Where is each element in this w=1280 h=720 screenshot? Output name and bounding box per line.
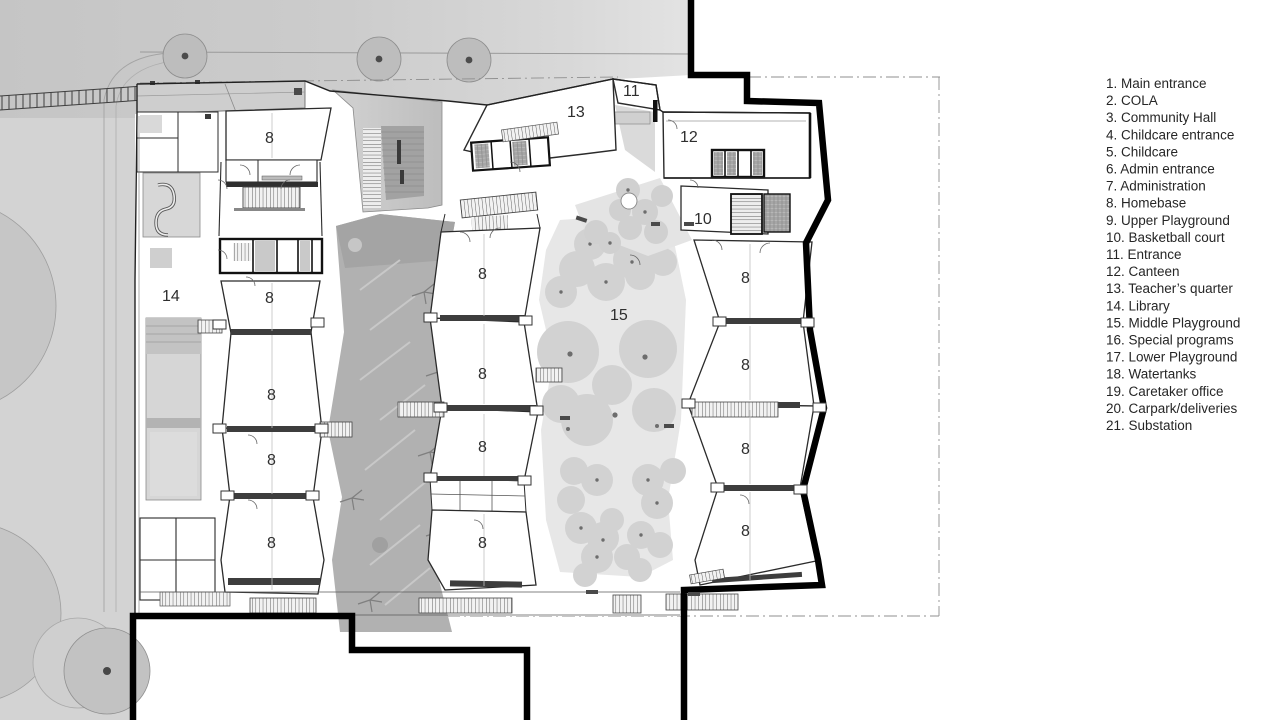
svg-text:17. Lower Playground: 17. Lower Playground (1106, 350, 1237, 365)
svg-text:4. Childcare entrance: 4. Childcare entrance (1106, 127, 1234, 142)
svg-text:16. Special programs: 16. Special programs (1106, 333, 1234, 348)
svg-text:2. COLA: 2. COLA (1106, 93, 1158, 108)
svg-text:6. Admin entrance: 6. Admin entrance (1106, 162, 1215, 177)
svg-text:10: 10 (694, 211, 712, 228)
svg-text:7. Administration: 7. Administration (1106, 179, 1206, 194)
svg-text:8: 8 (741, 270, 750, 287)
svg-text:1. Main entrance: 1. Main entrance (1106, 76, 1207, 91)
svg-text:8: 8 (265, 130, 274, 147)
svg-text:8: 8 (265, 290, 274, 307)
svg-text:9. Upper Playground: 9. Upper Playground (1106, 213, 1230, 228)
svg-text:15. Middle Playground: 15. Middle Playground (1106, 315, 1240, 330)
svg-text:13: 13 (567, 104, 585, 121)
svg-text:8: 8 (741, 441, 750, 458)
svg-text:14. Library: 14. Library (1106, 298, 1170, 313)
svg-text:8: 8 (478, 535, 487, 552)
svg-text:8: 8 (478, 439, 487, 456)
svg-text:18. Watertanks: 18. Watertanks (1106, 367, 1197, 382)
svg-text:10. Basketball court: 10. Basketball court (1106, 230, 1225, 245)
svg-text:8: 8 (741, 357, 750, 374)
svg-text:8: 8 (478, 366, 487, 383)
svg-text:12: 12 (680, 129, 698, 146)
svg-text:11: 11 (623, 83, 640, 100)
svg-text:12. Canteen: 12. Canteen (1106, 264, 1180, 279)
svg-text:5. Childcare: 5. Childcare (1106, 144, 1178, 159)
svg-text:15: 15 (610, 307, 628, 324)
svg-text:20. Carpark/deliveries: 20. Carpark/deliveries (1106, 401, 1238, 416)
svg-text:19. Caretaker office: 19. Caretaker office (1106, 384, 1224, 399)
svg-text:13. Teacher’s quarter: 13. Teacher’s quarter (1106, 281, 1233, 296)
svg-text:8: 8 (478, 266, 487, 283)
svg-text:14: 14 (162, 288, 180, 305)
svg-text:8: 8 (267, 535, 276, 552)
svg-text:8: 8 (267, 452, 276, 469)
svg-text:8. Homebase: 8. Homebase (1106, 196, 1186, 211)
svg-text:3. Community Hall: 3. Community Hall (1106, 110, 1216, 125)
svg-text:11. Entrance: 11. Entrance (1106, 247, 1182, 262)
svg-text:8: 8 (267, 387, 276, 404)
svg-text:8: 8 (741, 523, 750, 540)
svg-text:21. Substation: 21. Substation (1106, 418, 1192, 433)
